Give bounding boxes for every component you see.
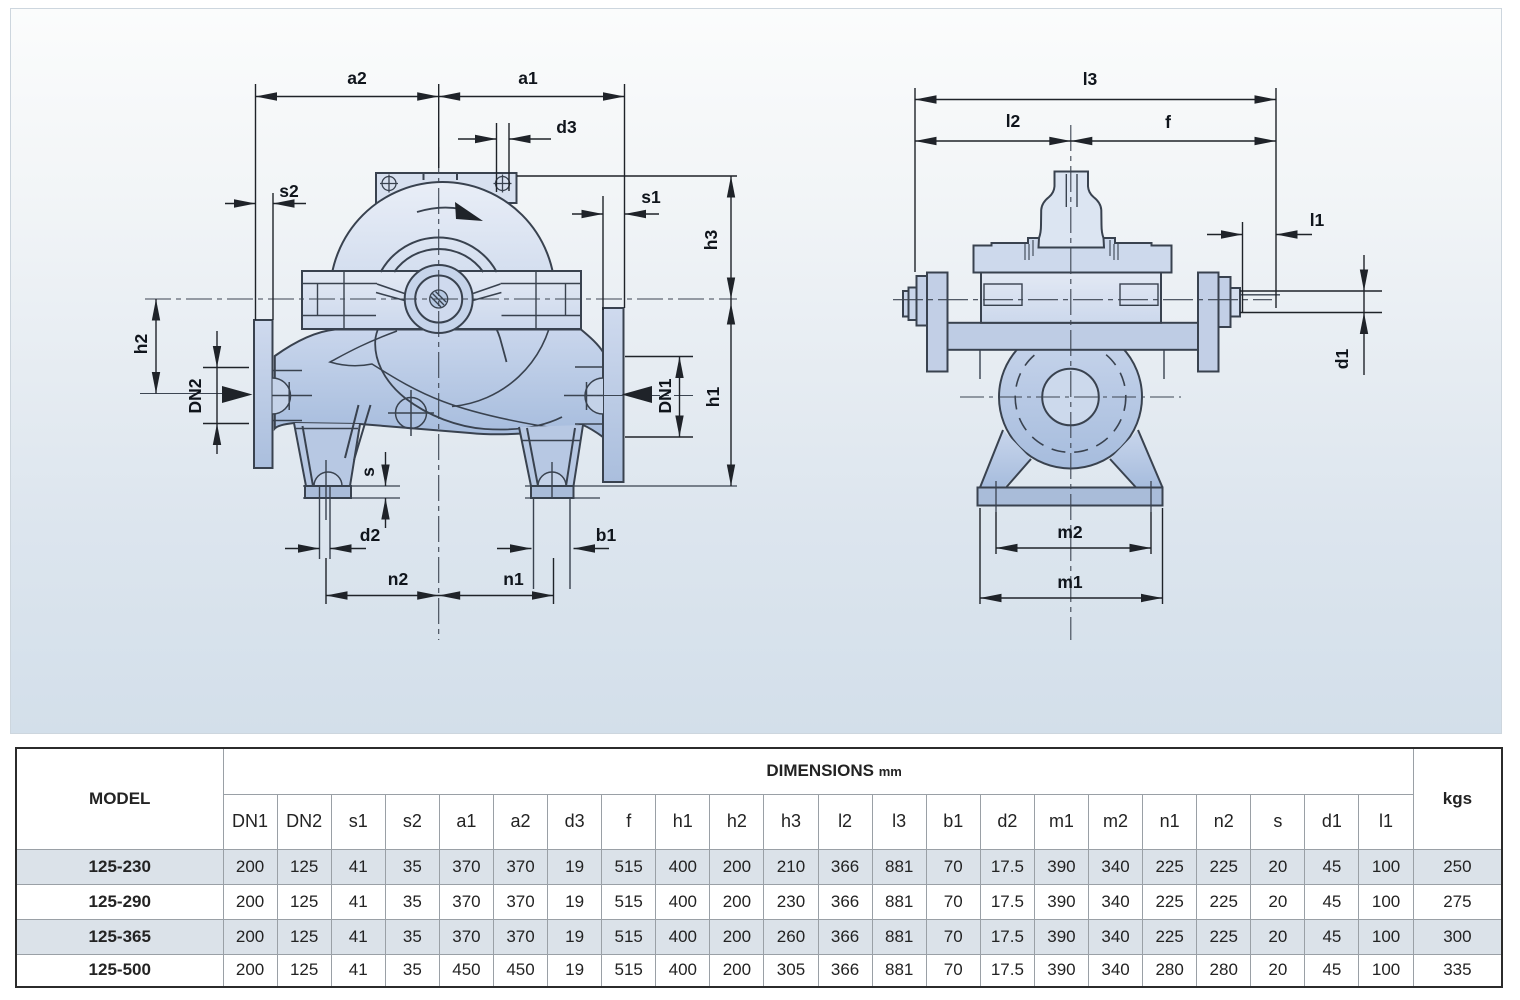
- svg-text:a1: a1: [518, 68, 538, 88]
- svg-text:DN1: DN1: [655, 378, 675, 413]
- svg-text:n2: n2: [388, 569, 409, 589]
- svg-text:DN2: DN2: [185, 378, 205, 413]
- svg-text:h1: h1: [703, 387, 723, 408]
- svg-text:m1: m1: [1057, 572, 1083, 592]
- svg-text:l2: l2: [1006, 111, 1021, 131]
- svg-text:a2: a2: [347, 68, 367, 88]
- svg-text:f: f: [1165, 112, 1171, 132]
- svg-text:d2: d2: [360, 525, 381, 545]
- svg-text:h2: h2: [131, 334, 151, 355]
- svg-text:h3: h3: [701, 230, 721, 251]
- svg-text:s2: s2: [279, 181, 299, 201]
- svg-text:n1: n1: [503, 569, 524, 589]
- svg-text:s1: s1: [641, 187, 661, 207]
- svg-text:m2: m2: [1057, 522, 1083, 542]
- svg-text:l3: l3: [1083, 69, 1098, 89]
- svg-text:d1: d1: [1332, 349, 1352, 370]
- svg-text:s: s: [358, 467, 378, 477]
- svg-text:b1: b1: [596, 525, 617, 545]
- svg-text:l1: l1: [1310, 210, 1325, 230]
- svg-text:d3: d3: [556, 117, 577, 137]
